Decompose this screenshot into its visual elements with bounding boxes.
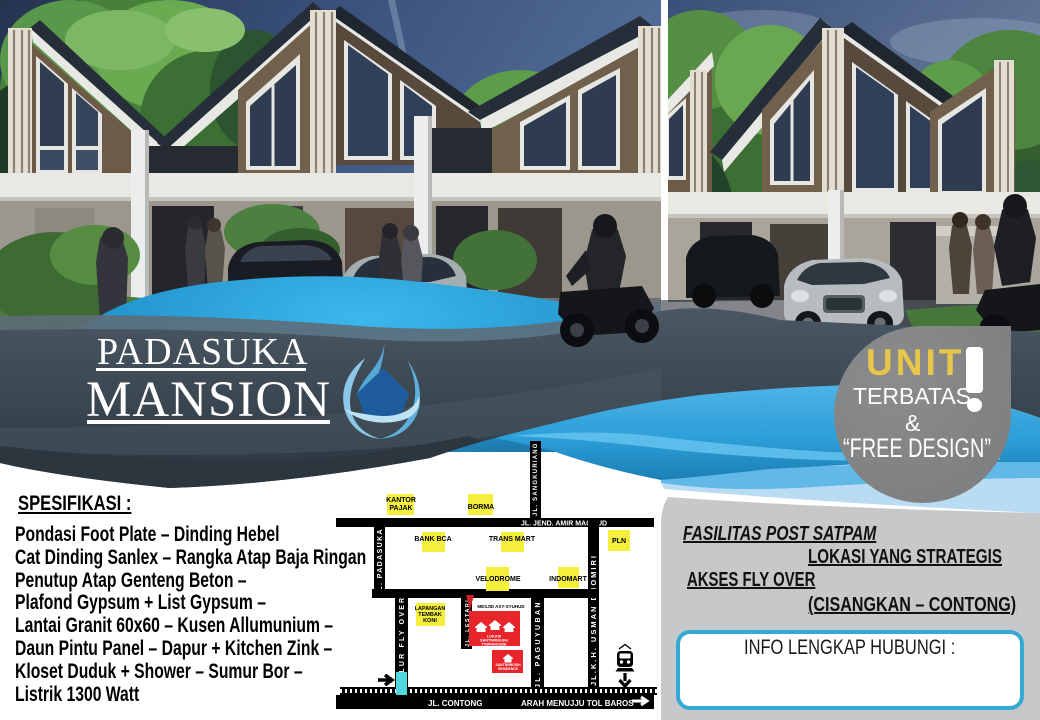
svg-text:JL.K.H. USMAN DHOMIRI: JL.K.H. USMAN DHOMIRI	[589, 554, 598, 686]
svg-text:JL. PAGUYUBAN: JL. PAGUYUBAN	[535, 600, 542, 688]
svg-text:VELODROME: VELODROME	[475, 576, 520, 583]
svg-text:ARAH MENUJJU TOL BAROS: ARAH MENUJJU TOL BAROS	[521, 699, 634, 708]
svg-text:RESIDENCE: RESIDENCE	[498, 667, 519, 671]
svg-text:PAJAK: PAJAK	[389, 505, 412, 512]
svg-text:INDOMART: INDOMART	[549, 576, 587, 583]
svg-text:KANTOR: KANTOR	[386, 497, 416, 504]
svg-text:PLN: PLN	[612, 538, 626, 545]
svg-text:TOWNHOUSE: TOWNHOUSE	[481, 642, 506, 646]
svg-text:JL. CONTONG: JL. CONTONG	[428, 699, 483, 708]
svg-text:BORMA: BORMA	[468, 504, 494, 511]
svg-text:JL. SANGKURIANG: JL. SANGKURIANG	[533, 442, 539, 516]
svg-text:TRANS MART: TRANS MART	[489, 536, 536, 543]
svg-text:BANK BCA: BANK BCA	[414, 536, 451, 543]
svg-text:MESJID ASY-SYUHUD: MESJID ASY-SYUHUD	[477, 604, 525, 609]
svg-text:KONI: KONI	[423, 618, 437, 624]
svg-text:JL. PADASUKA: JL. PADASUKA	[377, 528, 384, 596]
